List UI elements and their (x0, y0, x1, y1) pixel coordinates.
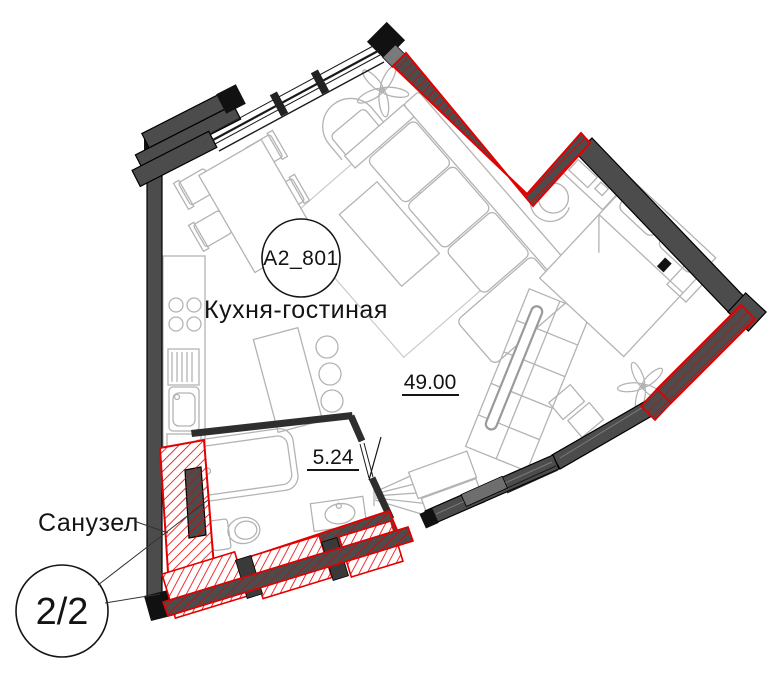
bar-stool (321, 390, 343, 412)
floor-plan-drawing: A2_801 Кухня-гостиная 49.00 5.24 Санузел… (0, 0, 779, 677)
red-wall-right (641, 305, 755, 420)
bar-stool (319, 363, 341, 385)
kitchen-living-area: 49.00 (404, 371, 457, 394)
toilet (209, 514, 262, 551)
stove-burner (169, 317, 183, 331)
door-swing (369, 437, 381, 480)
stove-burner (187, 317, 201, 331)
left-wall (147, 166, 162, 602)
floor-plan-sheet: A2_801 Кухня-гостиная 49.00 5.24 Санузел… (0, 0, 779, 677)
kitchen-living-label: Кухня-гостиная (204, 296, 388, 324)
stove-burner (169, 298, 183, 312)
kitchen-sink (169, 387, 199, 431)
bathroom-label: Санузел (38, 509, 139, 537)
dish-drainer (168, 349, 199, 385)
page-indicator: 2/2 (36, 591, 89, 633)
unit-label: A2_801 (263, 247, 338, 270)
bar-stool (316, 336, 338, 358)
stove-burner (187, 298, 201, 312)
bathroom-area: 5.24 (313, 446, 354, 469)
